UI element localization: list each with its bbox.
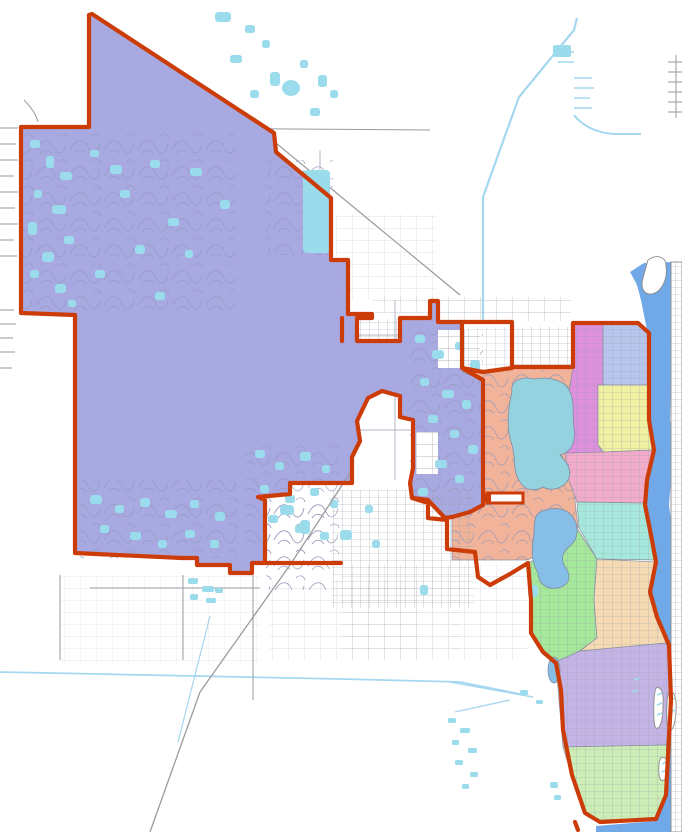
pond bbox=[90, 495, 102, 504]
pond bbox=[275, 462, 284, 470]
pond bbox=[135, 245, 145, 254]
pond bbox=[318, 75, 327, 87]
pond bbox=[185, 530, 195, 538]
pond bbox=[262, 40, 270, 48]
pond bbox=[462, 400, 471, 409]
wetland-mark bbox=[455, 760, 463, 765]
pond bbox=[150, 160, 160, 168]
pond bbox=[90, 150, 99, 157]
pond bbox=[420, 378, 429, 386]
pond bbox=[330, 90, 338, 98]
wetland-mark bbox=[554, 795, 561, 800]
pond bbox=[322, 465, 330, 473]
pond bbox=[420, 585, 428, 595]
pond bbox=[270, 72, 280, 86]
pond bbox=[46, 156, 54, 168]
pond bbox=[435, 460, 447, 468]
wetland-mark bbox=[202, 586, 214, 592]
wetland-mark bbox=[468, 748, 477, 753]
pond bbox=[310, 108, 320, 116]
pond bbox=[320, 532, 329, 540]
wetland-mark bbox=[520, 690, 528, 695]
pond bbox=[455, 475, 464, 483]
pond bbox=[280, 505, 294, 515]
pond bbox=[365, 505, 373, 513]
pond bbox=[210, 540, 219, 548]
pond bbox=[260, 485, 269, 493]
pond bbox=[468, 445, 478, 454]
pond bbox=[130, 532, 141, 540]
pond bbox=[442, 390, 454, 398]
wetland-mark bbox=[448, 718, 456, 723]
pond-large-north bbox=[303, 170, 330, 253]
pond bbox=[42, 252, 54, 262]
pond bbox=[140, 498, 150, 507]
pond bbox=[158, 540, 167, 548]
pond bbox=[110, 165, 122, 174]
pond bbox=[230, 55, 242, 63]
pond bbox=[340, 530, 352, 540]
pond bbox=[30, 270, 39, 278]
wetland-mark bbox=[462, 784, 469, 789]
pond bbox=[100, 525, 109, 533]
pond bbox=[300, 60, 308, 68]
pond bbox=[418, 488, 428, 496]
wetland-mark bbox=[460, 728, 470, 733]
lake-north bbox=[508, 378, 574, 490]
pond bbox=[450, 430, 459, 438]
pond bbox=[55, 284, 66, 293]
pond bbox=[30, 140, 40, 148]
pond bbox=[268, 515, 278, 523]
pond bbox=[190, 500, 199, 508]
wetland-mark bbox=[190, 594, 198, 600]
pond bbox=[155, 292, 165, 300]
wetland-mark bbox=[470, 772, 478, 777]
pond bbox=[168, 218, 179, 226]
pond bbox=[215, 12, 231, 22]
pond bbox=[310, 488, 319, 496]
map-viewport[interactable] bbox=[0, 0, 682, 832]
pond bbox=[165, 510, 177, 518]
pond bbox=[372, 540, 380, 548]
pond bbox=[60, 172, 72, 180]
pond bbox=[28, 222, 37, 235]
wetland-mark bbox=[206, 598, 216, 603]
wetland-mark bbox=[550, 782, 558, 788]
pond bbox=[300, 520, 310, 534]
pond bbox=[215, 512, 225, 521]
pond bbox=[185, 250, 193, 258]
pond bbox=[428, 415, 438, 423]
pond bbox=[300, 452, 311, 461]
pond bbox=[250, 90, 259, 98]
pond bbox=[190, 168, 202, 176]
wetland-mark bbox=[215, 588, 223, 593]
wetland-mark bbox=[452, 740, 459, 745]
pond bbox=[245, 25, 255, 33]
pond bbox=[34, 190, 42, 198]
pond bbox=[120, 190, 130, 198]
pond bbox=[68, 300, 76, 307]
pond bbox=[432, 350, 444, 359]
pond bbox=[52, 205, 66, 214]
pond bbox=[115, 505, 124, 513]
city-district-map bbox=[0, 0, 682, 832]
pond bbox=[220, 200, 230, 209]
pond bbox=[95, 270, 105, 278]
pond bbox=[255, 450, 265, 458]
boundary-sliver-enclave bbox=[487, 493, 523, 503]
pond bbox=[64, 236, 74, 244]
wetland-mark bbox=[536, 700, 543, 704]
pond bbox=[415, 335, 425, 343]
wetland-mark bbox=[188, 578, 198, 584]
